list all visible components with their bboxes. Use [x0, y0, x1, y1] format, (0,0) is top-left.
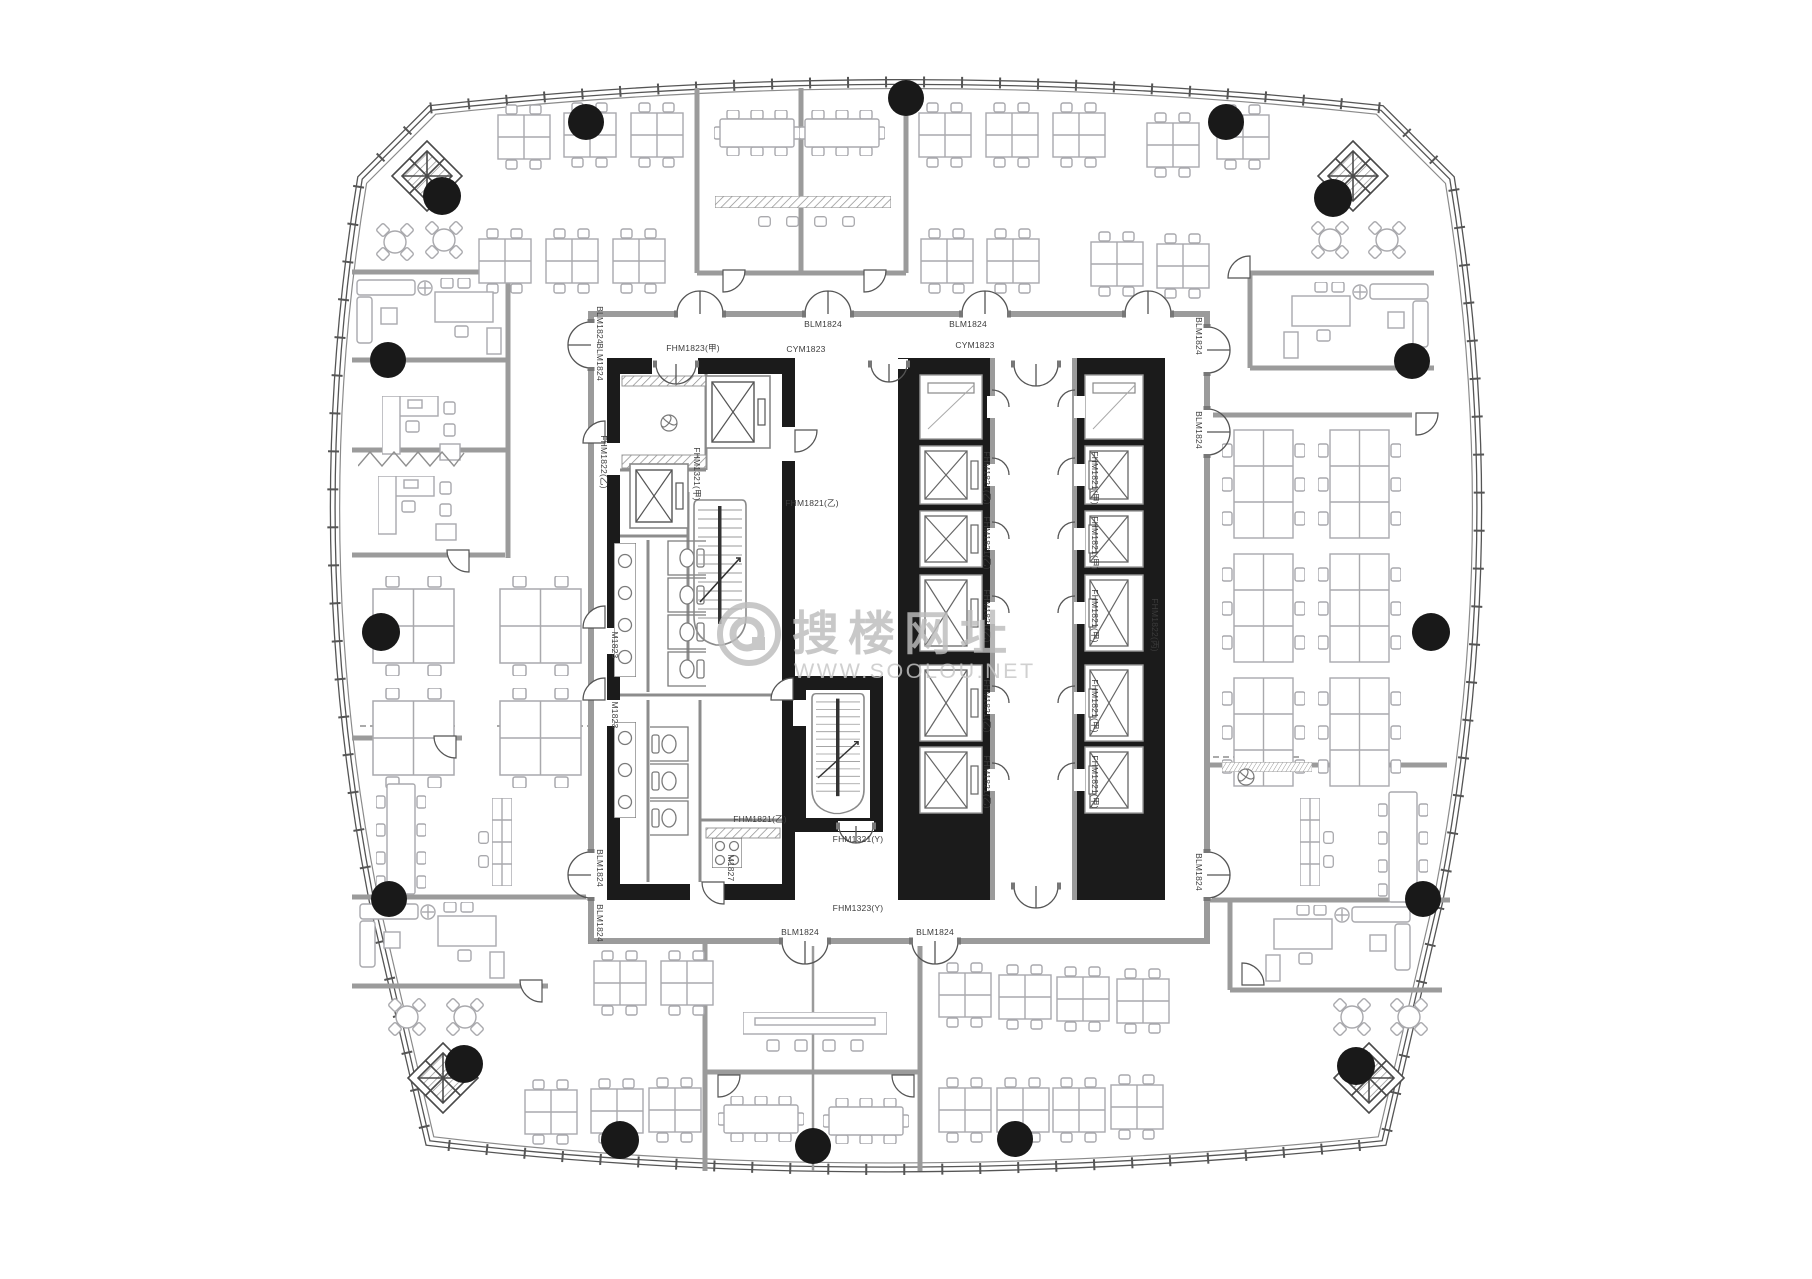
door-label: FHM1821(甲) — [1090, 589, 1100, 642]
door-jamb — [957, 938, 961, 945]
furniture-ws6v — [1318, 678, 1401, 786]
furniture-ws4 — [987, 229, 1039, 293]
elevator-counterweight — [971, 689, 978, 717]
elevator-door-gap — [987, 396, 998, 418]
furniture-cab — [492, 798, 512, 886]
door-jamb — [779, 938, 783, 945]
furniture-ws4 — [1053, 1078, 1105, 1142]
column-dot — [370, 342, 406, 378]
furniture-chair — [1324, 832, 1334, 844]
door-jamb — [1204, 897, 1211, 901]
column-dot — [1412, 613, 1450, 651]
furniture-ws4 — [921, 229, 973, 293]
furniture-ws4 — [498, 105, 550, 169]
furniture-ws4 — [1057, 967, 1109, 1031]
door-jamb — [695, 361, 699, 368]
door-jamb — [674, 311, 678, 318]
watermark-brand-text: 搜楼网址 — [792, 607, 1016, 660]
floor-plan-drawing: BLM1824BLM1824BLM1824BLM1824BLM1824BLM18… — [0, 0, 1812, 1279]
column-dot — [1208, 104, 1244, 140]
furniture-ws4 — [613, 229, 665, 293]
furniture-mtg8h — [823, 1098, 909, 1144]
door-jamb — [588, 319, 595, 323]
door-jamb — [906, 361, 910, 368]
door-label: BLM1824 — [781, 927, 819, 937]
furniture-mtg8h — [799, 110, 885, 156]
door-label: FHM1822(乙) — [599, 435, 609, 488]
door-label: BLM1824 — [595, 904, 605, 942]
furniture-counterh — [715, 196, 891, 208]
door-jamb — [653, 361, 657, 368]
furniture-ws6v — [1222, 554, 1305, 662]
door-label: BLM1824 — [804, 319, 842, 329]
elevator-door-gap — [1074, 692, 1085, 714]
furniture-ws4 — [939, 963, 991, 1027]
furniture-chair — [815, 217, 827, 227]
door-label: CYM1823 — [786, 344, 825, 354]
furniture-ws4 — [986, 103, 1038, 167]
door-label: FHM1821(乙) — [982, 755, 992, 808]
door-jamb — [588, 849, 595, 853]
door-jamb — [1122, 311, 1126, 318]
door-jamb — [722, 311, 726, 318]
elevator-door-gap — [1074, 396, 1085, 418]
door-label: BLM1824 — [1194, 853, 1204, 891]
furniture-chair — [479, 832, 489, 844]
door-jamb — [1204, 372, 1211, 376]
door-label: BLM1824 — [595, 849, 605, 887]
furniture-ws4 — [1053, 103, 1105, 167]
furniture-ws4L — [500, 688, 581, 788]
door-jamb — [1204, 406, 1211, 410]
furniture-ws6v — [1318, 430, 1401, 538]
door-label: CYM1823 — [955, 340, 994, 350]
furniture-fan — [661, 415, 677, 431]
furniture-ws4 — [649, 1078, 701, 1142]
furniture-ws4 — [546, 229, 598, 293]
furniture-ws4 — [999, 965, 1051, 1029]
furniture-ws4 — [1111, 1075, 1163, 1139]
column-dot — [1405, 881, 1441, 917]
door-label: BLM1824 — [916, 927, 954, 937]
furniture-ws4 — [661, 951, 713, 1015]
door-jamb — [1007, 311, 1011, 318]
elevator-counterweight — [971, 766, 978, 794]
furniture-ws4 — [1157, 234, 1209, 298]
elevator-counterweight — [971, 525, 978, 553]
door-jamb — [588, 367, 595, 371]
door-label: BLM1824 — [949, 319, 987, 329]
door-jamb — [1170, 311, 1174, 318]
elevator-door-gap — [1074, 464, 1085, 486]
furniture-ws4 — [919, 103, 971, 167]
door-label: M1827 — [726, 855, 736, 882]
furniture-ws4 — [1117, 969, 1169, 1033]
door-jamb — [827, 938, 831, 945]
watermark-url-text: WWW.SOOLOU.NET — [794, 659, 1036, 683]
column-dot — [1337, 1047, 1375, 1085]
door-label: BLM1824 — [595, 306, 605, 344]
furniture-sinks3 — [614, 722, 636, 818]
furniture-ws6v — [1222, 430, 1305, 538]
furniture-ws4 — [631, 103, 683, 167]
furniture-mtg8h — [714, 110, 800, 156]
door-jamb — [1011, 361, 1015, 368]
door-jamb — [1011, 883, 1015, 890]
door-label: FHM1321(Y) — [833, 834, 884, 844]
door-jamb — [909, 938, 913, 945]
furniture-ws4 — [1091, 232, 1143, 296]
door-label: FHM1821(乙) — [785, 498, 838, 508]
furniture-ws4L — [500, 576, 581, 676]
door-label: FHM1821(甲) — [1090, 516, 1100, 569]
furniture-chair — [759, 217, 771, 227]
column-dot — [362, 613, 400, 651]
furniture-cab — [1300, 798, 1320, 886]
door-label: FHM1821(甲) — [1090, 451, 1100, 504]
elevator-counterweight — [971, 461, 978, 489]
door-label: FHM1821(甲) — [1090, 755, 1100, 808]
door-jamb — [868, 361, 872, 368]
door-label: FHM1821(乙) — [733, 814, 786, 824]
furniture-mtg8h — [718, 1096, 804, 1142]
column-dot — [888, 80, 924, 116]
door-label: M1823 — [610, 702, 620, 729]
door-label: FHM1323(Y) — [833, 903, 884, 913]
door-label: BLM1824 — [1194, 317, 1204, 355]
furniture-ws4 — [479, 229, 531, 293]
column-dot — [795, 1128, 831, 1164]
elevator-door-gap — [1074, 528, 1085, 550]
door-jamb — [959, 311, 963, 318]
column-dot — [423, 177, 461, 215]
column-dot — [568, 104, 604, 140]
door-jamb — [872, 823, 876, 830]
column-dot — [371, 881, 407, 917]
door-label: FHM1821(甲) — [1090, 679, 1100, 732]
furniture-ws4 — [1147, 113, 1199, 177]
door-label: FHM1821(乙) — [982, 679, 992, 732]
furniture-chair — [1324, 856, 1334, 868]
furniture-fan — [1238, 769, 1254, 785]
door-label: FHM1822(丙) — [1150, 598, 1160, 651]
elevator-bank-doorwall — [1072, 358, 1077, 900]
door-jamb — [850, 311, 854, 318]
door-label: FHM1823(甲) — [666, 343, 719, 353]
elevator-door-gap — [1074, 602, 1085, 624]
door-label: BLM1824 — [1194, 411, 1204, 449]
service-elevator-counterweight — [758, 399, 765, 425]
furniture-chair — [787, 217, 799, 227]
door-label: M1823 — [610, 632, 620, 659]
furniture-ws6v — [1318, 554, 1401, 662]
furniture-counterh — [1222, 762, 1312, 772]
column-dot — [1314, 179, 1352, 217]
furniture-chair — [479, 856, 489, 868]
door-label: FHM1821(乙) — [982, 451, 992, 504]
furniture-ws4 — [939, 1078, 991, 1142]
door-jamb — [1204, 454, 1211, 458]
furniture-ws4 — [594, 951, 646, 1015]
door-label: FHM1321(甲) — [692, 447, 702, 500]
door-label: FHM1821(乙) — [982, 516, 992, 569]
door-label: BLM1824 — [595, 343, 605, 381]
column-dot — [601, 1121, 639, 1159]
service-elevator-counterweight — [676, 483, 683, 509]
column-dot — [445, 1045, 483, 1083]
floor-plan-page: BLM1824BLM1824BLM1824BLM1824BLM1824BLM18… — [0, 0, 1812, 1279]
door-jamb — [588, 897, 595, 901]
furniture-chair — [843, 217, 855, 227]
column-dot — [997, 1121, 1033, 1157]
door-jamb — [1057, 361, 1061, 368]
door-jamb — [836, 823, 840, 830]
door-jamb — [802, 311, 806, 318]
elevator-door-gap — [1074, 769, 1085, 791]
furniture-ws4 — [525, 1080, 577, 1144]
column-dot — [1394, 343, 1430, 379]
door-jamb — [1057, 883, 1061, 890]
